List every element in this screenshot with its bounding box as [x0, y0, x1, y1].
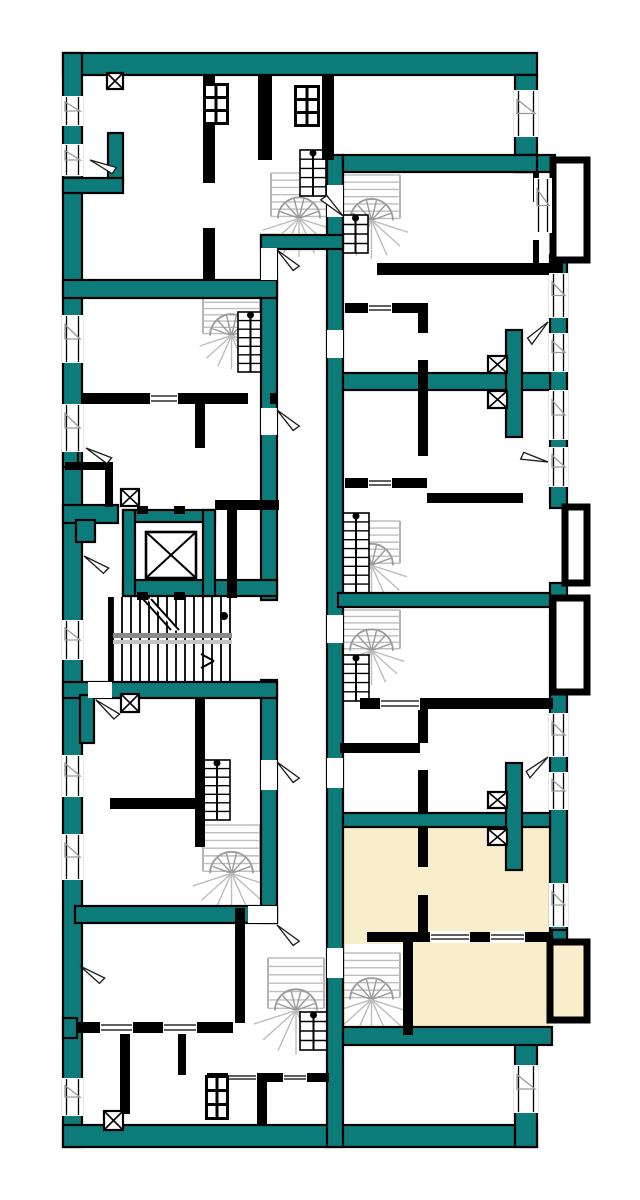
- stair-run-icon: [343, 215, 368, 254]
- window-icon: [62, 1078, 83, 1116]
- window-opening: [368, 302, 392, 314]
- partition-wall: [257, 1082, 267, 1126]
- load-bearing-wall: [261, 235, 343, 249]
- duct-cell: [297, 114, 306, 124]
- partition-wall: [418, 709, 428, 743]
- stair-run-icon: [343, 655, 369, 702]
- floor-plan-page: [0, 0, 640, 1200]
- window-icon: [100, 1021, 133, 1034]
- load-bearing-wall: [63, 280, 277, 298]
- partition-wall: [403, 942, 413, 1035]
- load-bearing-wall: [343, 1027, 552, 1045]
- elevator-wall-tab: [174, 592, 185, 600]
- load-bearing-wall: [63, 1125, 537, 1147]
- window-opening: [380, 697, 420, 710]
- duct-cell: [309, 114, 318, 124]
- partition-wall: [340, 743, 420, 753]
- duct-cell: [219, 1106, 227, 1117]
- door-opening: [261, 248, 277, 280]
- load-bearing-wall: [203, 510, 215, 596]
- duct-cell: [218, 99, 227, 109]
- window-icon: [380, 697, 420, 710]
- window-icon: [163, 1021, 197, 1034]
- stair-newel-dot: [247, 312, 254, 319]
- window-icon: [549, 447, 568, 487]
- balcony-outline: [550, 942, 587, 1020]
- partition-wall: [195, 403, 205, 448]
- window-icon: [62, 755, 83, 797]
- load-bearing-wall: [506, 763, 522, 870]
- duct-cell: [297, 101, 306, 111]
- duct-cell: [219, 1078, 227, 1089]
- stair-newel-dot: [353, 513, 360, 520]
- duct-cell: [219, 1092, 227, 1103]
- partition-wall: [227, 510, 237, 598]
- door-opening: [327, 615, 343, 643]
- stair-run-icon: [300, 1012, 327, 1051]
- elevator-wall-tab: [137, 592, 148, 600]
- window-icon: [549, 772, 568, 810]
- door-opening: [327, 758, 343, 788]
- window-icon: [534, 178, 552, 233]
- partition-wall: [203, 228, 215, 280]
- vent-shaft-icon: [488, 829, 507, 845]
- balcony-outline: [565, 507, 587, 583]
- duct-cell: [208, 1106, 216, 1117]
- partition-wall: [418, 390, 428, 456]
- duct-cell: [309, 101, 318, 111]
- load-bearing-wall: [506, 330, 522, 437]
- partition-wall: [195, 809, 205, 847]
- stair-newel-dot: [214, 760, 221, 767]
- duct-cell: [206, 112, 215, 122]
- window-icon: [62, 96, 83, 126]
- window-opening: [228, 1072, 257, 1083]
- partition-wall: [418, 303, 428, 333]
- duct-cell: [208, 1092, 216, 1103]
- stair-run-icon: [238, 312, 263, 373]
- stair-run-icon: [343, 513, 369, 594]
- duct-cell: [208, 1078, 216, 1089]
- partition-wall: [427, 493, 523, 503]
- partition-wall: [418, 360, 428, 390]
- window-icon: [549, 390, 568, 440]
- partition-wall: [195, 698, 205, 798]
- window-opening: [100, 1021, 133, 1034]
- duct-cell: [218, 112, 227, 122]
- duct-cell: [206, 99, 215, 109]
- duct-block-icon: [205, 1075, 229, 1120]
- window-icon: [549, 713, 568, 757]
- partition-wall: [258, 75, 272, 160]
- window-icon: [62, 620, 83, 660]
- window-icon: [368, 302, 392, 314]
- window-icon: [62, 834, 83, 880]
- stair-run-icon: [204, 760, 230, 821]
- elevator-wall-tab: [174, 506, 185, 514]
- duct-block-icon: [203, 83, 229, 125]
- load-bearing-wall: [338, 593, 550, 607]
- stair-newel-dot: [220, 612, 228, 620]
- window-icon: [490, 931, 525, 943]
- partition-wall: [120, 1032, 130, 1114]
- door-opening: [261, 760, 277, 790]
- load-bearing-wall: [76, 520, 95, 542]
- window-icon: [549, 333, 568, 372]
- partition-wall: [110, 798, 205, 809]
- door-opening: [88, 682, 112, 698]
- window-opening: [150, 392, 178, 405]
- door-opening: [327, 948, 343, 978]
- duct-cell: [206, 86, 215, 96]
- load-bearing-wall: [63, 178, 123, 193]
- vent-shaft-icon: [104, 1111, 123, 1130]
- load-bearing-wall: [327, 155, 343, 1147]
- load-bearing-wall: [108, 133, 123, 183]
- window-icon: [283, 1072, 307, 1083]
- partition-wall: [235, 908, 245, 1023]
- window-opening: [490, 931, 525, 943]
- door-opening: [327, 330, 343, 358]
- window-icon: [514, 90, 538, 137]
- duct-block-icon: [294, 85, 320, 127]
- window-icon: [430, 931, 470, 943]
- window-icon: [150, 392, 178, 405]
- vent-shaft-icon: [107, 73, 123, 89]
- vent-shaft-icon: [121, 489, 139, 506]
- duct-cell: [297, 88, 306, 98]
- load-bearing-wall: [343, 155, 537, 172]
- load-bearing-wall: [63, 53, 82, 1147]
- stair-landing-rail: [111, 640, 232, 644]
- partition-wall: [533, 240, 539, 265]
- floor-plan-canvas: [0, 0, 640, 1200]
- stair-newel-dot: [352, 215, 359, 222]
- window-icon: [62, 404, 83, 452]
- window-icon: [228, 1072, 257, 1083]
- stair-newel-dot: [353, 655, 360, 662]
- load-bearing-wall: [261, 680, 277, 923]
- stair-newel-dot: [310, 1012, 317, 1019]
- duct-cell: [309, 88, 318, 98]
- stair-newel-dot: [310, 150, 317, 157]
- duct-cell: [218, 86, 227, 96]
- partition-wall: [270, 393, 277, 404]
- load-bearing-wall: [123, 510, 215, 522]
- window-opening: [163, 1021, 197, 1034]
- vent-shaft-icon: [488, 391, 507, 408]
- vent-shaft-icon: [488, 356, 507, 373]
- load-bearing-wall: [63, 1018, 77, 1038]
- vent-shaft-icon: [121, 694, 139, 712]
- vent-shaft-icon: [488, 792, 507, 808]
- load-bearing-wall: [80, 695, 94, 743]
- partition-wall: [105, 462, 113, 507]
- partition-wall: [418, 827, 428, 867]
- partition-wall: [418, 770, 428, 813]
- door-opening: [248, 906, 277, 923]
- partition-wall: [418, 895, 428, 932]
- window-icon: [368, 477, 392, 489]
- elevator-wall-tab: [137, 506, 148, 514]
- stair-landing-rail: [111, 633, 232, 638]
- load-bearing-wall: [63, 53, 537, 75]
- door-opening: [261, 408, 277, 435]
- window-icon: [549, 883, 568, 927]
- window-icon: [62, 315, 83, 363]
- window-opening: [368, 477, 392, 489]
- partition-wall: [322, 75, 334, 160]
- partition-wall: [215, 500, 279, 510]
- window-icon: [549, 273, 568, 318]
- balcony-outline: [553, 160, 587, 260]
- load-bearing-wall: [123, 510, 135, 596]
- window-icon: [514, 1065, 538, 1113]
- window-opening: [283, 1072, 307, 1083]
- balcony-outline: [553, 598, 587, 692]
- window-opening: [430, 931, 470, 943]
- window-icon: [62, 144, 83, 176]
- partition-wall: [108, 597, 113, 682]
- load-bearing-wall: [75, 906, 277, 923]
